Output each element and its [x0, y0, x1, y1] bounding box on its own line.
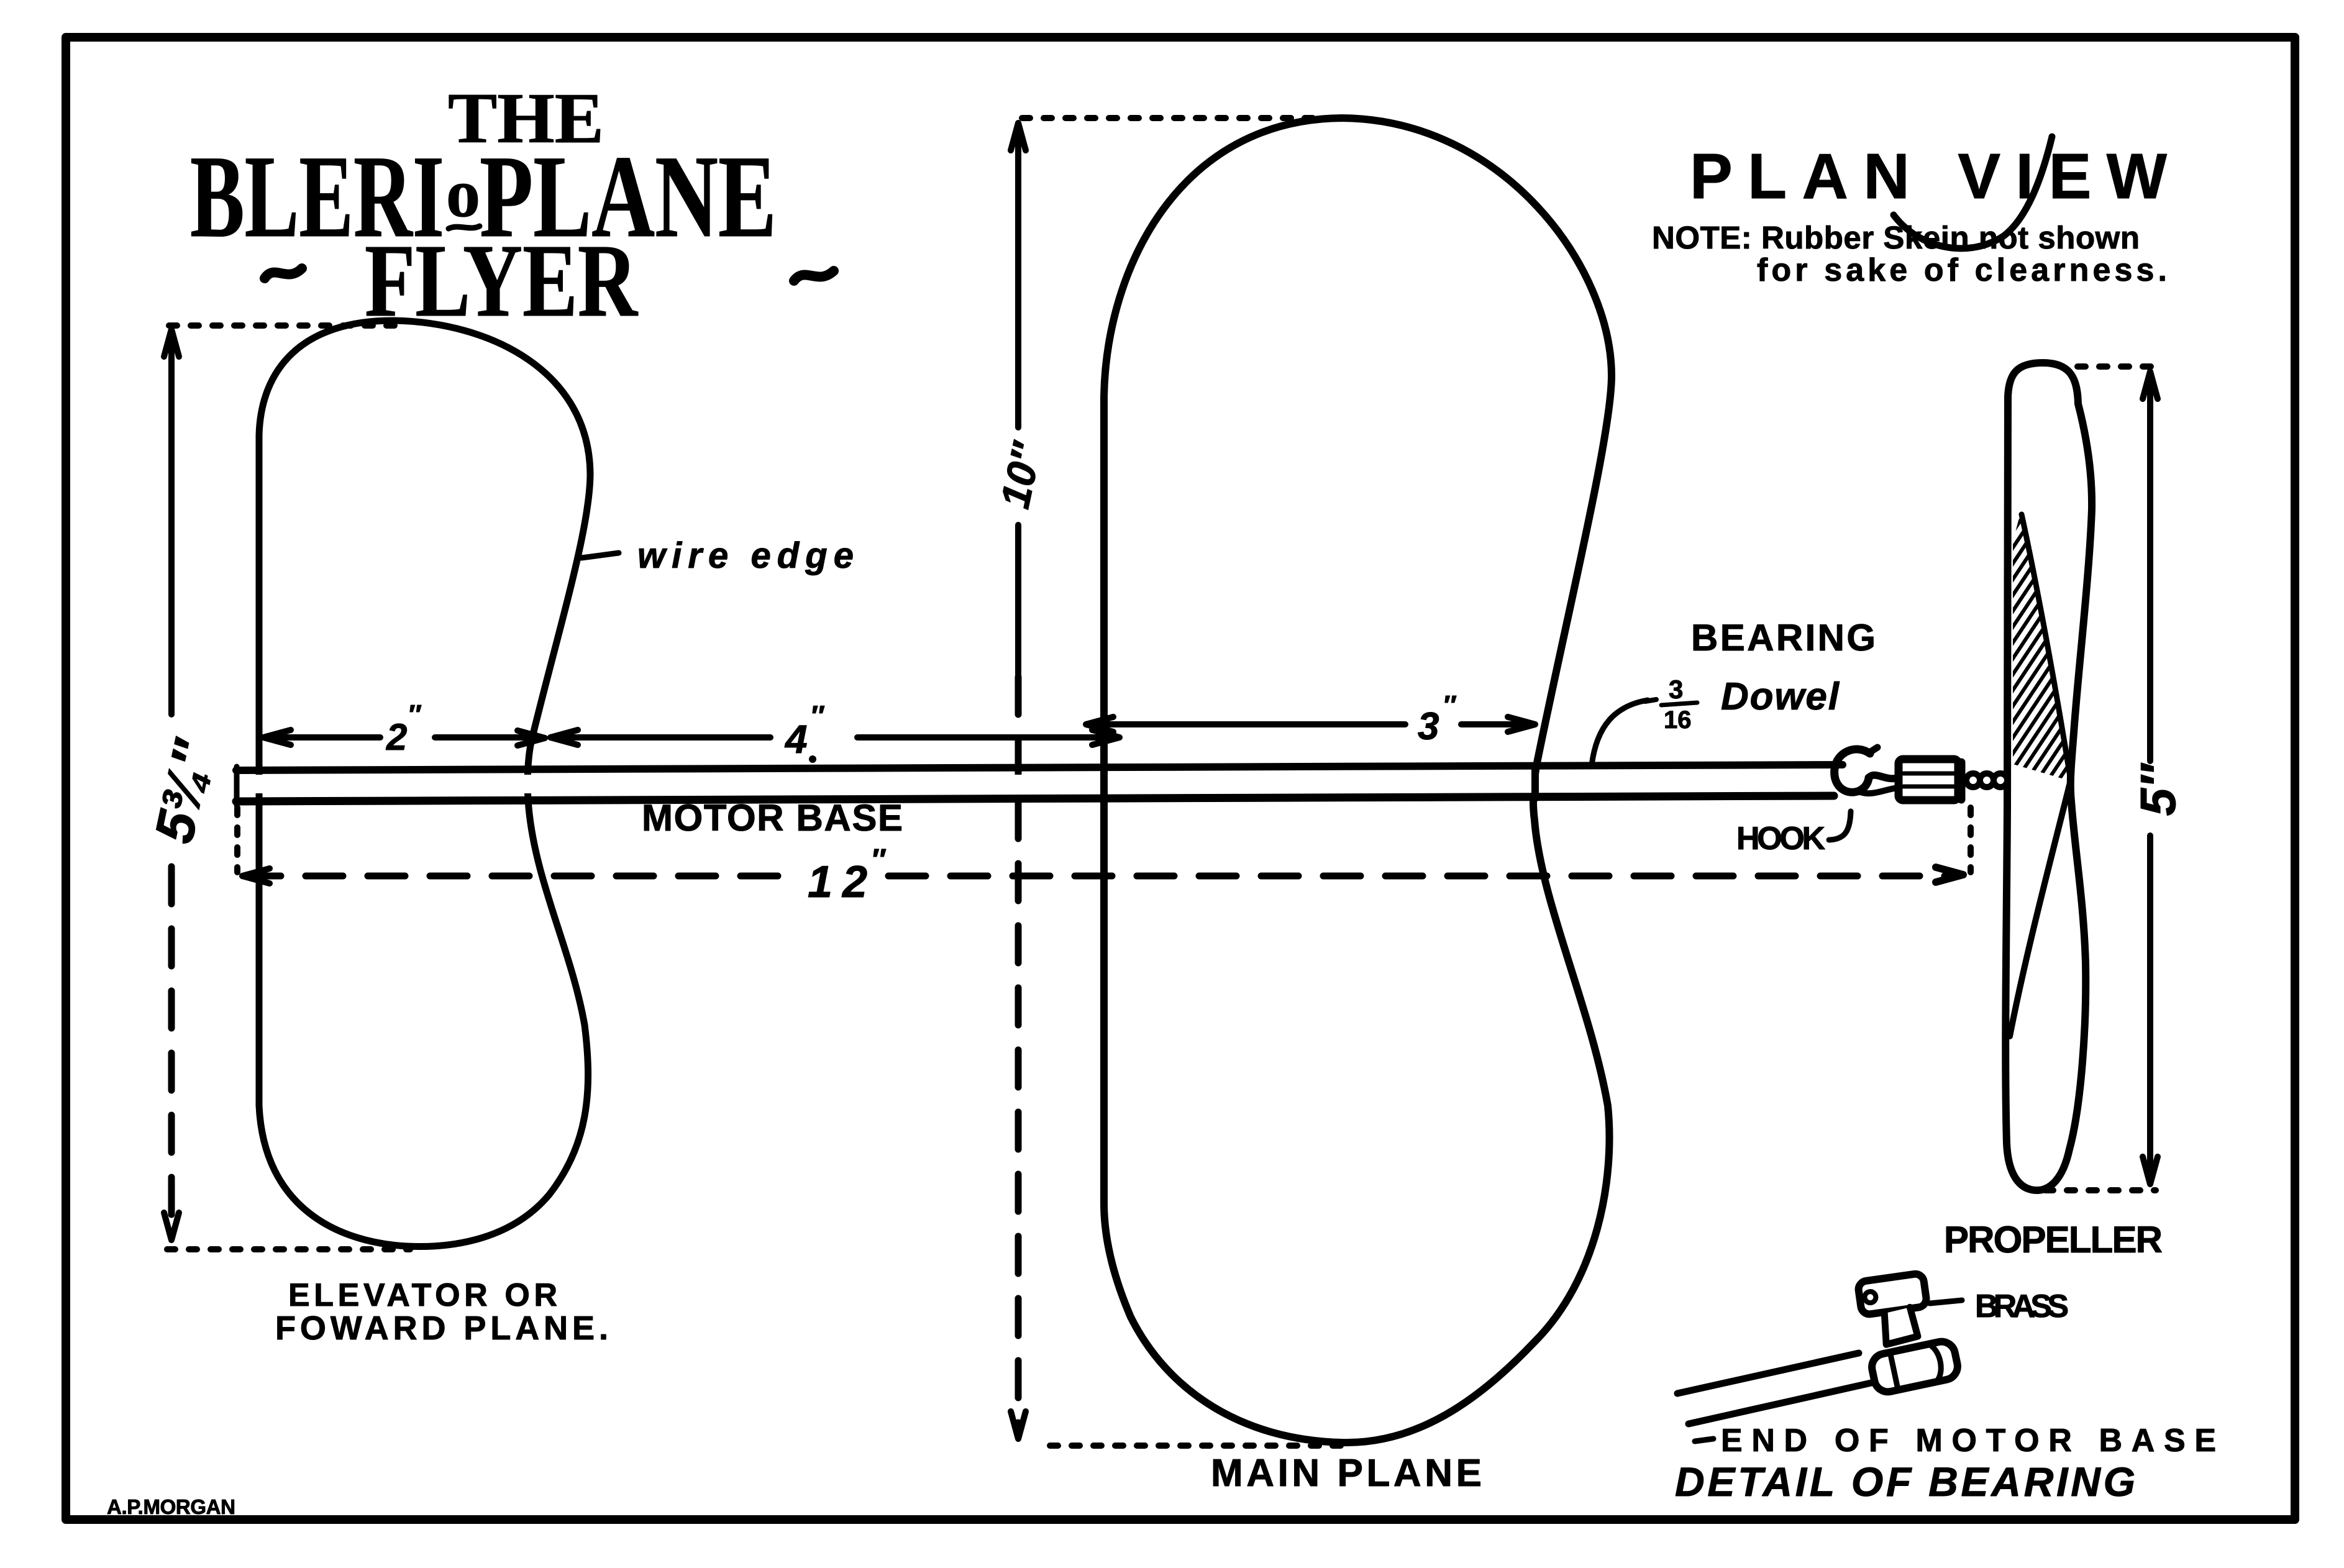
svg-text:o: o	[446, 155, 480, 231]
svg-text:″: ″	[1444, 690, 1457, 721]
svg-text:4: 4	[784, 717, 808, 762]
svg-text:5″: 5″	[2130, 762, 2186, 816]
svg-text:for sake of clearness.: for sake of clearness.	[1757, 252, 2167, 288]
svg-text:16: 16	[1664, 706, 1692, 734]
svg-text:″: ″	[872, 844, 887, 877]
svg-text:NOTE: Rubber Skein not shown: NOTE: Rubber Skein not shown	[1652, 220, 2140, 255]
svg-text:3: 3	[1669, 675, 1683, 704]
svg-text:″: ″	[409, 700, 422, 730]
svg-text:DETAIL OF BEARING: DETAIL OF BEARING	[1675, 1459, 2135, 1505]
svg-text:ELEVATOR OR: ELEVATOR OR	[288, 1277, 557, 1313]
svg-text:″: ″	[811, 700, 825, 732]
svg-text:MOTOR BASE: MOTOR BASE	[642, 797, 903, 839]
svg-text:FOWARD PLANE.: FOWARD PLANE.	[275, 1310, 608, 1347]
svg-text:FLYER: FLYER	[365, 223, 638, 339]
svg-text:HOOK: HOOK	[1736, 821, 1825, 857]
svg-text:3: 3	[1418, 705, 1439, 748]
svg-text:A.P.MORGAN: A.P.MORGAN	[107, 1495, 235, 1518]
svg-text:Dowel: Dowel	[1721, 675, 1840, 718]
svg-text:BRASS: BRASS	[1975, 1288, 2069, 1324]
svg-text:MAIN PLANE: MAIN PLANE	[1211, 1452, 1482, 1495]
svg-text:PROPELLER: PROPELLER	[1944, 1219, 2163, 1260]
svg-text:END OF MOTOR BASE: END OF MOTOR BASE	[1721, 1423, 2216, 1459]
svg-text:2: 2	[386, 716, 407, 758]
